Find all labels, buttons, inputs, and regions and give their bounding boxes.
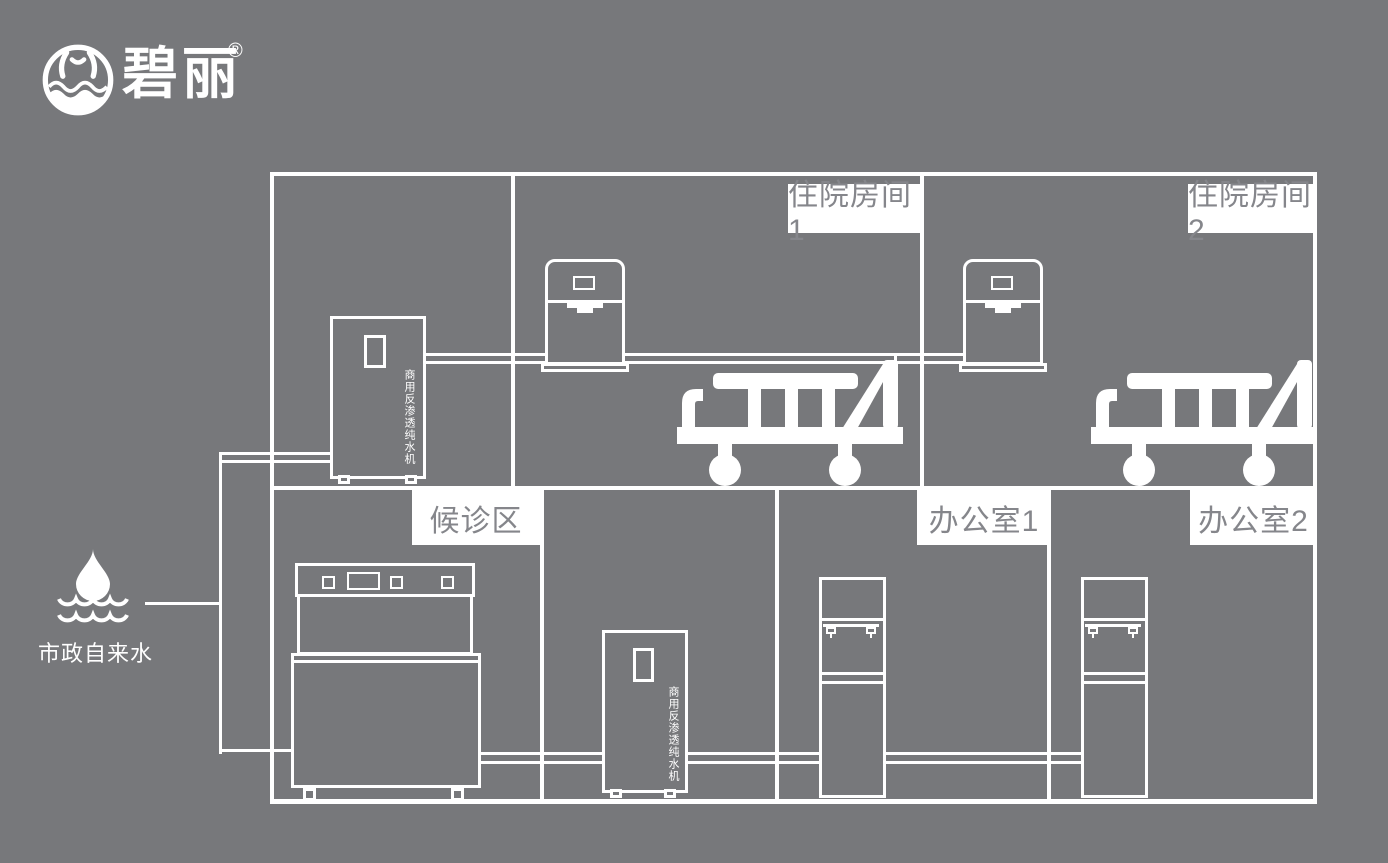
room-label-inpatient2: 住院房间2: [1188, 184, 1317, 233]
room-label-inpatient1: 住院房间1: [788, 184, 920, 233]
boiler-control-panel: [295, 563, 475, 597]
dispenser-faucet: [1088, 627, 1098, 634]
dispenser-faucet: [866, 627, 876, 634]
boiler-button: [390, 576, 403, 589]
dispenser-body: [963, 259, 1043, 365]
machine-foot: [338, 475, 350, 484]
machine-foot: [610, 789, 622, 798]
dispenser-display: [573, 276, 595, 290]
dispenser-shelf: [819, 618, 886, 621]
upper-feed-pipe-a: [221, 452, 332, 455]
dispenser-band: [1081, 681, 1148, 684]
ro-machine-upper: 商用反渗透纯水机: [330, 316, 426, 479]
brand-water-logo-icon: [40, 42, 116, 118]
dispenser-shelf: [1081, 618, 1148, 621]
lower-wall-center-office1: [775, 486, 779, 804]
dispenser-band: [1081, 672, 1148, 675]
dispenser-spout-tip: [995, 308, 1011, 313]
boiler-display: [347, 572, 380, 590]
room-label-office1: 办公室1: [917, 490, 1051, 545]
dispenser-display: [991, 276, 1013, 290]
dispenser-faucet: [826, 627, 836, 634]
dispenser-base: [541, 363, 629, 372]
dispenser-spout-tip: [577, 308, 593, 313]
room-label-text: 办公室2: [1198, 496, 1309, 540]
lower-distribution-pipe-b: [480, 761, 1083, 764]
desktop-dispenser-room1: [545, 259, 625, 372]
brand-name: 碧丽: [122, 46, 242, 102]
boiler-button: [322, 576, 335, 589]
registered-trademark-mark: ®: [228, 40, 243, 63]
upper-distribution-pipe-a: [426, 353, 966, 356]
boiler-cabinet: [291, 653, 481, 788]
riser-pipe: [219, 452, 222, 754]
room-label-text: 候诊区: [430, 496, 523, 540]
upper-feed-pipe-b: [221, 460, 332, 463]
hospital-bed-room1: [675, 358, 905, 488]
lower-distribution-pipe-a: [480, 752, 1083, 755]
diagram-canvas: 碧丽 ® 市政自来水: [0, 0, 1388, 863]
water-drop-waves-icon: [56, 549, 132, 633]
floor-dispenser-office2: [1081, 577, 1148, 798]
room-label-text: 住院房间1: [788, 170, 920, 248]
waiting-area-water-boiler: [291, 563, 481, 801]
machine-foot: [405, 475, 417, 484]
municipal-feed-pipe: [145, 602, 222, 605]
ro-machine-window: [364, 335, 386, 368]
dispenser-faucet: [1128, 627, 1138, 634]
dispenser-base: [959, 363, 1047, 372]
desktop-dispenser-room2: [963, 259, 1043, 372]
upper-wall-utility-room1: [511, 172, 515, 490]
floor-dispenser-office1: [819, 577, 886, 798]
machine-foot: [664, 789, 676, 798]
ro-machine-vertical-label: 商用反渗透纯水机: [402, 369, 414, 465]
municipal-water-label: 市政自来水: [38, 636, 168, 668]
room-label-waiting-area: 候诊区: [412, 490, 540, 545]
dispenser-body: [545, 259, 625, 365]
boiler-button: [441, 576, 454, 589]
room-label-text: 办公室1: [929, 496, 1040, 540]
dispenser-band: [819, 681, 886, 684]
hospital-bed-room2: [1089, 358, 1319, 488]
lower-wall-waiting-center: [540, 486, 544, 804]
dispenser-band: [819, 672, 886, 675]
ro-machine-window: [633, 648, 654, 682]
room-label-office2: 办公室2: [1190, 490, 1317, 545]
upper-wall-room1-room2: [920, 172, 924, 490]
lower-feed-pipe: [221, 749, 296, 752]
room-label-text: 住院房间2: [1188, 170, 1317, 248]
ro-machine-vertical-label: 商用反渗透纯水机: [666, 686, 678, 782]
ro-machine-lower: 商用反渗透纯水机: [602, 630, 688, 793]
building-bottom-wall: [270, 799, 1317, 804]
boiler-basin: [297, 597, 473, 655]
